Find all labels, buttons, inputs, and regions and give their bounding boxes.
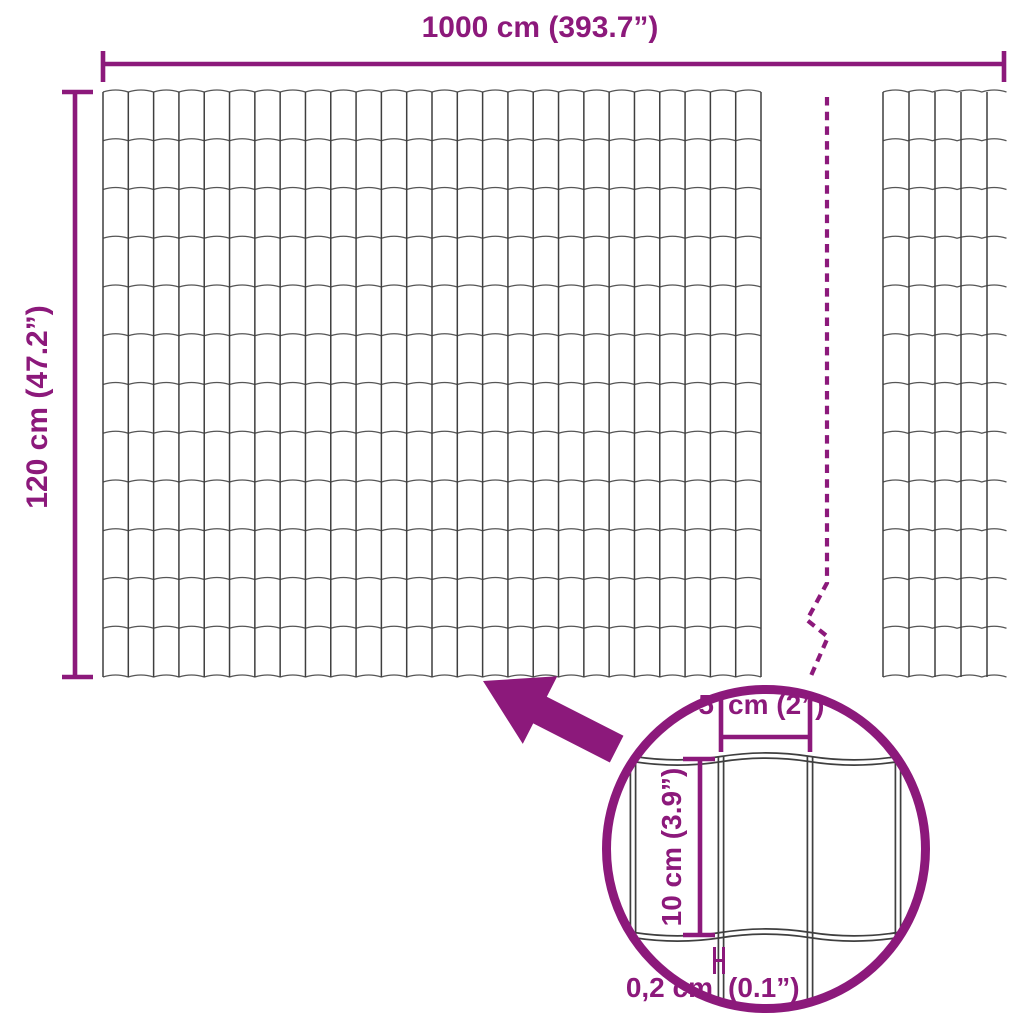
- height-dimension: 120 cm (47.2”): [21, 92, 93, 677]
- fence-mesh-right-panel: [883, 90, 1007, 677]
- cell-width-label-unit: cm (2”): [728, 689, 824, 720]
- fence-dimension-diagram: 1000 cm (393.7”) 120 cm (47.2”): [0, 0, 1024, 1024]
- cell-height-label: 10 cm (3.9”): [656, 768, 687, 927]
- wire-thickness-label-number: 0,2 cm: [626, 972, 713, 1003]
- height-dimension-label: 120 cm (47.2”): [21, 305, 54, 508]
- panel-break-line: [807, 97, 828, 678]
- wire-thickness-label-unit: (0.1”): [728, 972, 800, 1003]
- width-dimension-label: 1000 cm (393.7”): [422, 11, 659, 44]
- cell-width-label-number: 5: [698, 689, 714, 720]
- diagram-canvas: 1000 cm (393.7”) 120 cm (47.2”): [0, 0, 1024, 1024]
- width-dimension: 1000 cm (393.7”): [103, 11, 1004, 82]
- fence-mesh-left-panel: [103, 90, 761, 677]
